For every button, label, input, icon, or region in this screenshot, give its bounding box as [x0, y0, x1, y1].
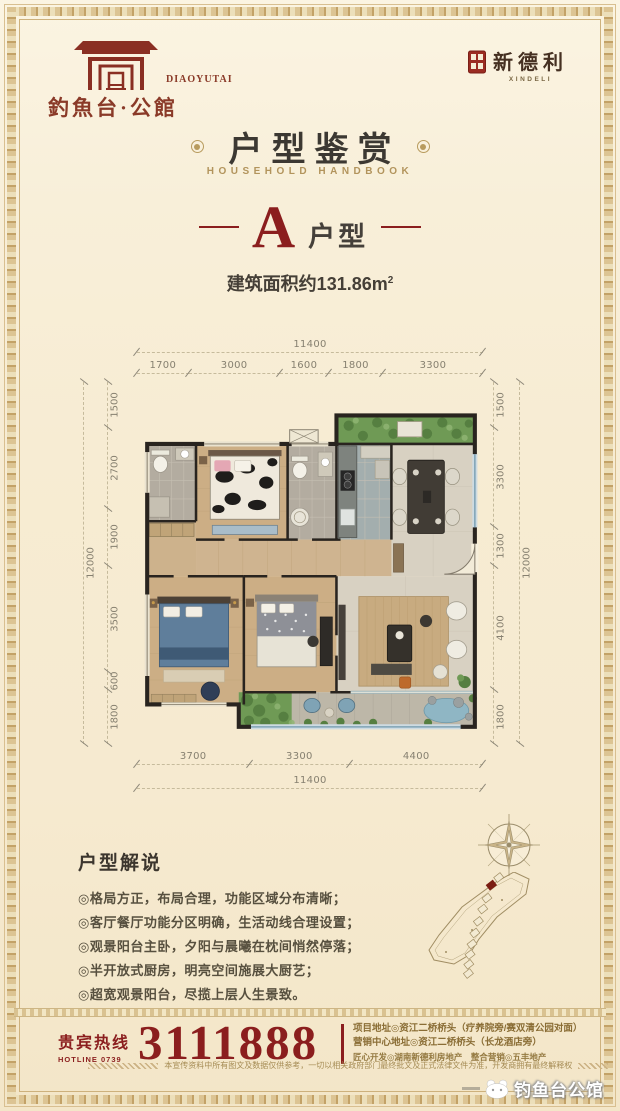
description-section: 户型解说 ◎格局方正，布局合理，功能区域分布清晰； ◎客厅餐厅功能分区明确，生活… — [78, 848, 448, 1007]
dim-top-segments: 1700 3000 1600 1800 3300 — [137, 359, 483, 374]
dim-label: 4100 — [496, 615, 507, 640]
dim-label: 600 — [110, 671, 121, 690]
dim-right-total: 12000 — [519, 382, 534, 744]
unit-area-sup: 2 — [388, 275, 394, 286]
dim-label: 3300 — [249, 751, 349, 762]
dim-right-segments: 1500 3300 1300 4100 1800 — [493, 382, 508, 744]
watermark-dash — [462, 1087, 480, 1090]
dim-left-segments: 1500 2700 1900 3500 600 1800 — [107, 382, 122, 744]
page-title: 户型鉴赏 — [220, 122, 401, 171]
gate-logo-cn: 釣魚台·公館 — [48, 92, 258, 122]
dim-label: 1800 — [328, 360, 383, 371]
unit-letter: A — [252, 198, 295, 256]
dim-label: 3300 — [496, 464, 507, 489]
dim-top-total: 11400 — [137, 338, 483, 353]
dim-label: 3300 — [383, 360, 483, 371]
unit-label: 户型 — [308, 201, 368, 254]
dim-label: 2700 — [110, 455, 121, 480]
description-bullet: ◎半开放式厨房，明亮空间施展大厨艺； — [78, 959, 448, 983]
divider-line — [199, 226, 239, 229]
mascot-icon — [484, 1079, 510, 1099]
rosette-icon — [191, 140, 204, 153]
floorplan-rendering — [137, 382, 483, 744]
watermark-text: 钓鱼台公馆 — [514, 1076, 604, 1101]
poster: DIAOYUTAI 釣魚台·公館 新德利 XINDELI 户型鉴赏 HOUSEH… — [0, 0, 620, 1111]
disclaimer-text: 本宣传资料中所有图文及数据仅供参考，一切以相关政府部门最终批文及正式法律文件为准… — [164, 1060, 572, 1071]
dim-bottom-segments: 3700 3300 4400 — [137, 750, 483, 765]
unit-area: 建筑面积约131.86m2 — [0, 270, 620, 296]
description-bullet: ◎格局方正，布局合理，功能区域分布清晰； — [78, 887, 448, 911]
hotline-number: 3111888 — [138, 1022, 318, 1064]
project-info: 项目地址◎资江二桥桥头（疗养院旁/赛双清公园对面） 营销中心地址◎资江二桥桥头（… — [353, 1022, 603, 1064]
dim-label: 11400 — [137, 775, 483, 786]
seal-logo-en: XINDELI — [509, 76, 552, 83]
disclaimer-row: 本宣传资料中所有图文及数据仅供参考，一切以相关政府部门最终批文及正式法律文件为准… — [88, 1060, 608, 1071]
description-bullet: ◎客厅餐厅功能分区明确，生活动线合理设置； — [78, 911, 448, 935]
dim-label: 1600 — [280, 360, 329, 371]
unit-area-text: 建筑面积约131.86m — [227, 274, 388, 294]
sales-center-address: 营销中心地址◎资江二桥桥头（长龙酒店旁） — [353, 1036, 603, 1050]
hatch-ornament — [88, 1063, 158, 1069]
dim-label: 3000 — [189, 360, 280, 371]
dim-label: 12000 — [522, 547, 533, 579]
dim-label: 1700 — [137, 360, 189, 371]
page-subtitle: HOUSEHOLD HANDBOOK — [0, 166, 620, 177]
compass-icon — [478, 814, 540, 876]
red-seal-icon — [468, 50, 486, 74]
dim-label: 1800 — [110, 704, 121, 729]
gate-logo-en: DIAOYUTAI — [166, 74, 233, 85]
dim-label: 1500 — [110, 392, 121, 417]
description-bullet: ◎超宽观景阳台，尽揽上层人生景致。 — [78, 983, 448, 1007]
watermark: 钓鱼台公馆 — [462, 1076, 604, 1101]
seal-logo-cn: 新德利 — [493, 46, 568, 75]
dim-label: 3700 — [137, 751, 249, 762]
project-address: 项目地址◎资江二桥桥头（疗养院旁/赛双清公园对面） — [353, 1022, 603, 1036]
dim-label: 1500 — [496, 392, 507, 417]
frame-border-top — [7, 7, 613, 16]
description-heading: 户型解说 — [78, 848, 448, 875]
description-bullet: ◎观景阳台主卧，夕阳与晨曦在枕间悄然停落； — [78, 935, 448, 959]
dim-left-total: 12000 — [83, 382, 98, 744]
hatch-ornament — [578, 1063, 608, 1069]
footer-divider-bar — [341, 1024, 344, 1064]
dim-label: 4400 — [349, 751, 483, 762]
hotline-block: 贵宾热线 HOTLINE 0739 3111888 — [58, 1022, 318, 1064]
floorplan-block: 11400 1700 3000 1600 1800 3300 12000 150… — [75, 338, 545, 810]
dim-label: 1300 — [496, 534, 507, 559]
dim-label: 11400 — [137, 339, 483, 350]
dim-label: 3500 — [110, 606, 121, 631]
site-plan-inset — [424, 872, 549, 992]
dim-label: 1800 — [496, 704, 507, 729]
dim-label: 12000 — [86, 547, 97, 579]
hotline-label: 贵宾热线 — [58, 1029, 130, 1053]
gate-arch-icon — [70, 34, 162, 90]
xindeli-logo: 新德利 XINDELI — [468, 46, 568, 83]
rosette-icon — [417, 140, 430, 153]
divider-line — [381, 226, 421, 229]
diaoyutai-logo: DIAOYUTAI 釣魚台·公館 — [48, 34, 258, 124]
dim-label: 1900 — [110, 525, 121, 550]
dim-bottom-total: 11400 — [137, 774, 483, 789]
